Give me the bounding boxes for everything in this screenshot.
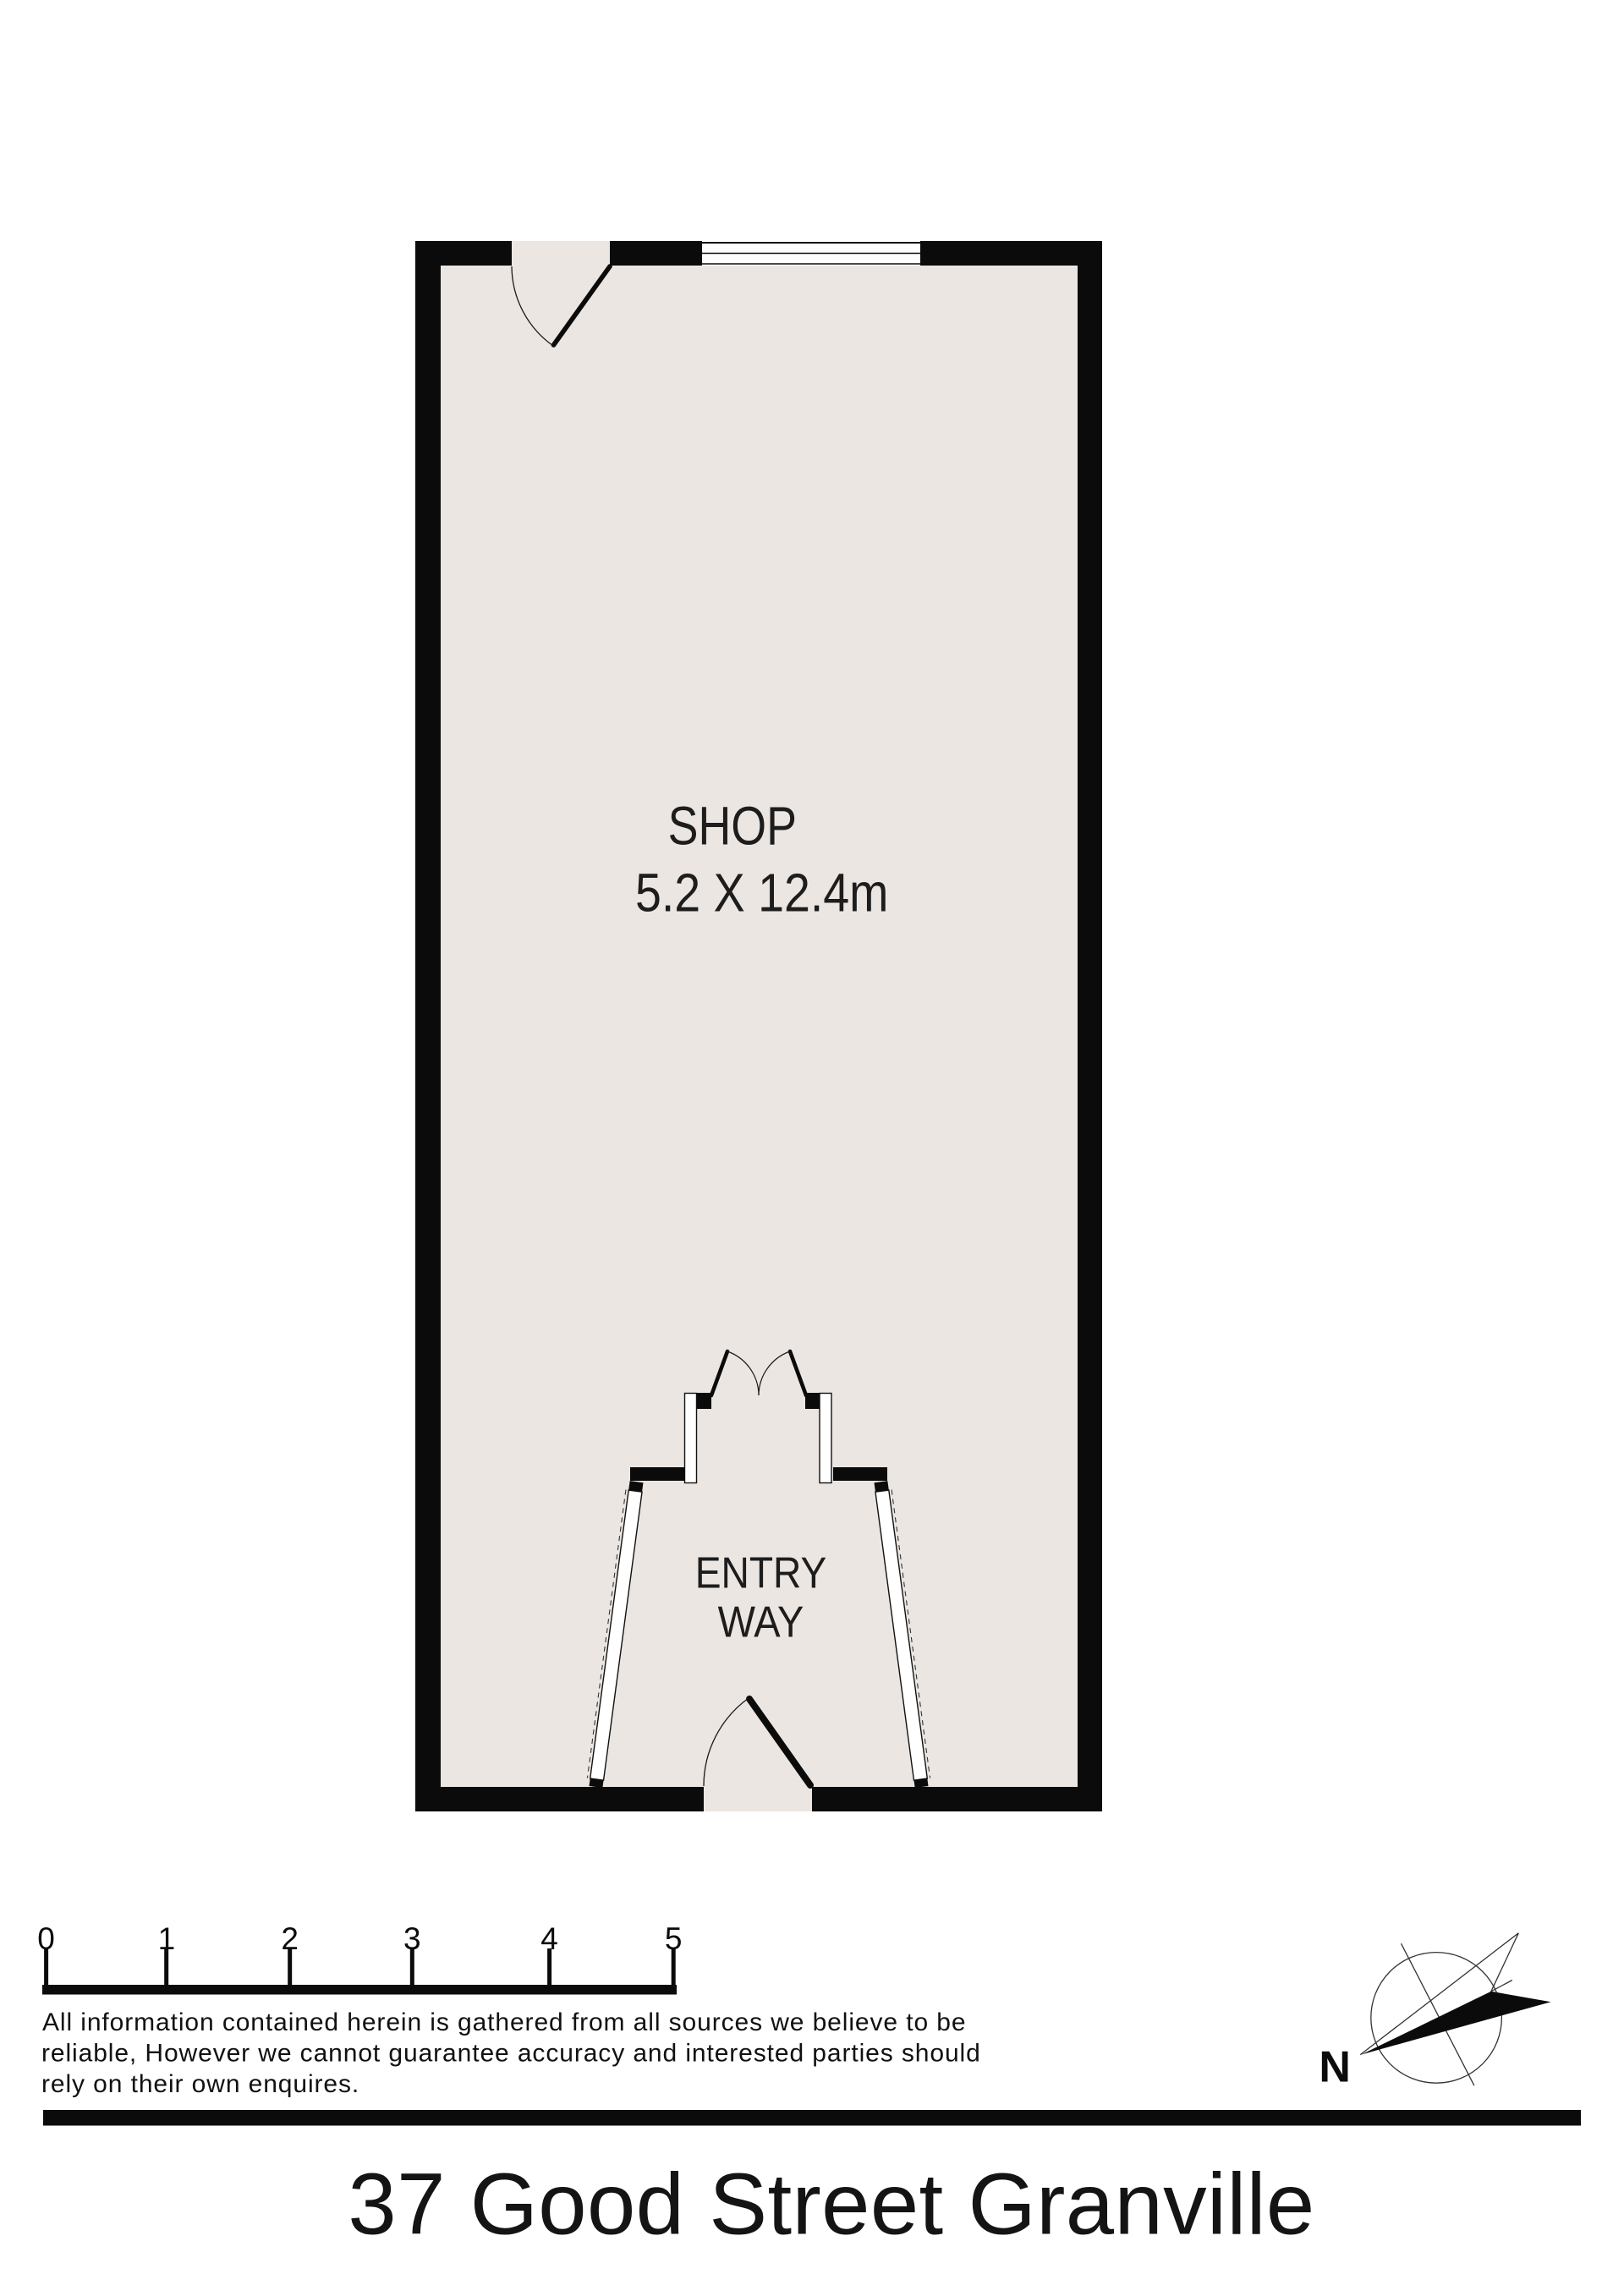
svg-text:5: 5 — [665, 1921, 683, 1956]
svg-text:3: 3 — [403, 1921, 421, 1956]
svg-text:reliable, However we cannot gu: reliable, However we cannot guarantee ac… — [41, 2040, 981, 2068]
svg-text:All information contained here: All information contained herein is gath… — [42, 2008, 966, 2036]
svg-text:0: 0 — [37, 1921, 55, 1956]
svg-text:SHOP: SHOP — [668, 795, 797, 857]
svg-text:N: N — [1319, 2043, 1351, 2092]
svg-text:2: 2 — [281, 1921, 299, 1956]
svg-text:4: 4 — [540, 1921, 558, 1956]
svg-text:37 Good Street Granville: 37 Good Street Granville — [348, 2155, 1314, 2252]
svg-text:rely on their own enquires.: rely on their own enquires. — [41, 2070, 359, 2098]
svg-text:ENTRY: ENTRY — [695, 1548, 827, 1597]
svg-text:5.2 X 12.4m: 5.2 X 12.4m — [635, 863, 888, 923]
svg-text:1: 1 — [158, 1921, 176, 1956]
svg-text:WAY: WAY — [718, 1597, 804, 1647]
